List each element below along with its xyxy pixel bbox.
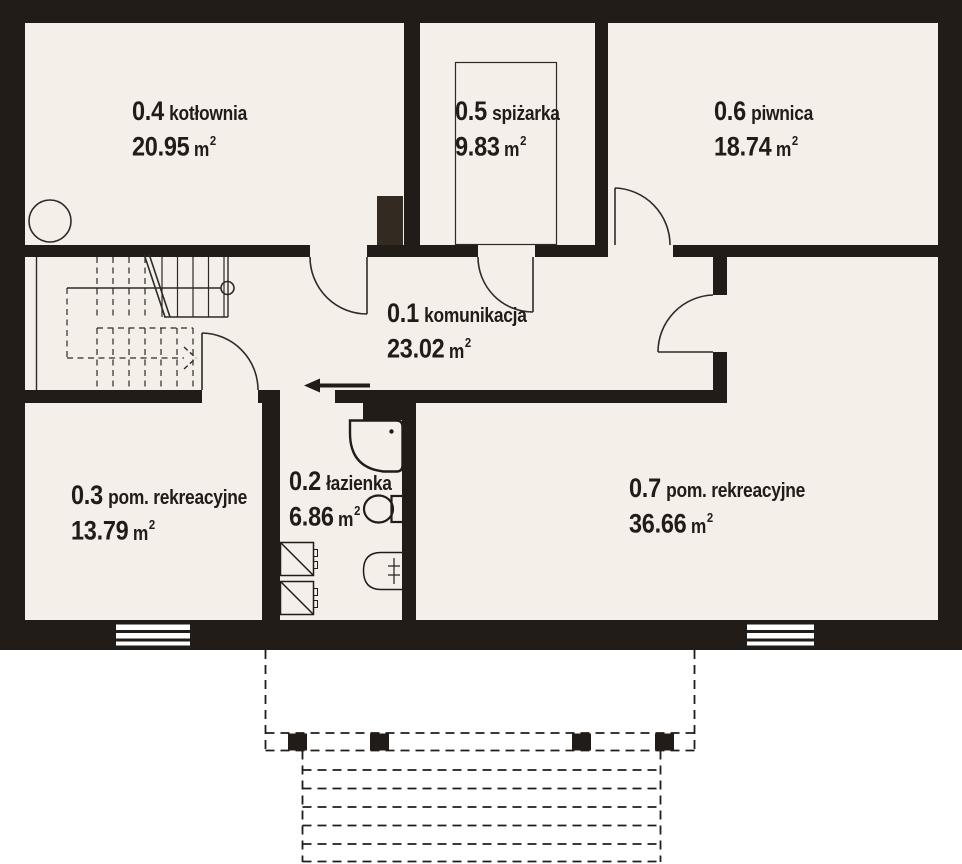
room-label-komunikacja: 0.1komunikacja 23.02m2 xyxy=(387,299,527,368)
terrace-outline xyxy=(266,650,695,751)
door-opening-kotlownia xyxy=(310,245,367,257)
room-label-spizarka: 0.5spiżarka 9.83m2 xyxy=(455,97,560,166)
door-opening-rekreacyjne07 xyxy=(713,295,727,352)
exterior-steps xyxy=(303,751,661,863)
terrace-posts xyxy=(288,734,674,751)
door-opening-piwnica xyxy=(608,245,673,257)
room-label-rekreacyjne03: 0.3pom. rekreacyjne 13.79m2 xyxy=(71,481,247,550)
door-opening-lazienka xyxy=(280,390,335,403)
floor-plan: 0.4kotłownia 20.95m2 0.5spiżarka 9.83m2 … xyxy=(0,0,962,864)
room-label-piwnica: 0.6piwnica 18.74m2 xyxy=(714,97,813,166)
room-rekreacyjne07-upper-floor xyxy=(727,257,938,403)
door-opening-rekreacyjne03 xyxy=(202,390,258,403)
room-komunikacja-floor xyxy=(25,257,713,390)
room-label-rekreacyjne07: 0.7pom. rekreacyjne 36.66m2 xyxy=(629,474,805,543)
room-label-lazienka: 0.2łazienka 6.86m2 xyxy=(289,467,392,536)
door-opening-spizarka xyxy=(478,245,535,257)
room-label-kotlownia: 0.4kotłownia 20.95m2 xyxy=(132,97,247,166)
